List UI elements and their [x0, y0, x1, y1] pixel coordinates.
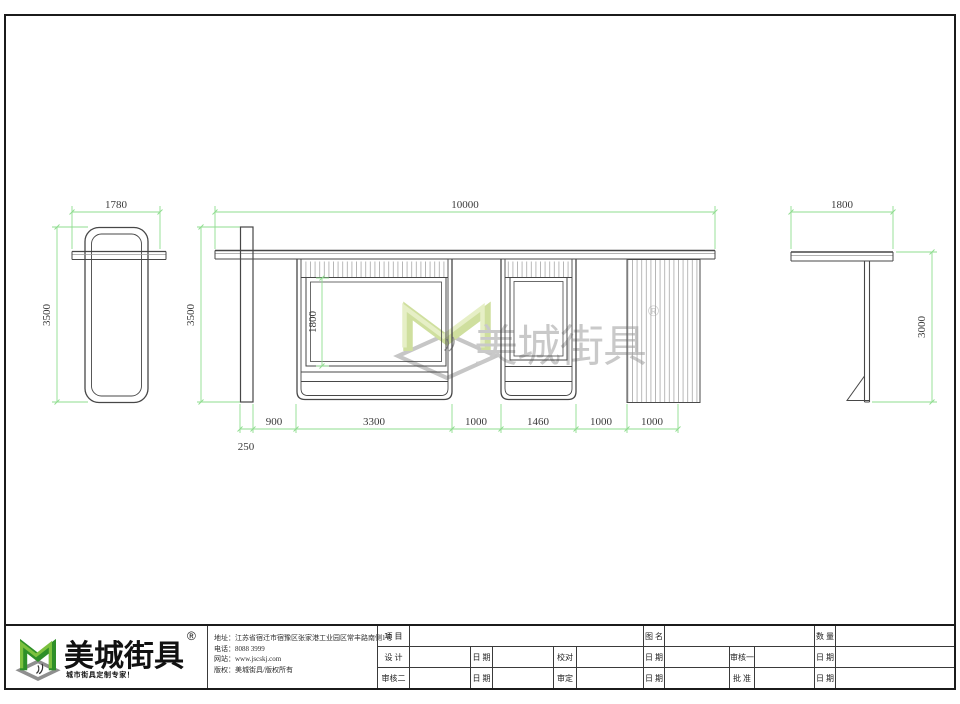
- label-proofread: 校对: [553, 647, 576, 667]
- field-proofread-date-value: [664, 647, 729, 667]
- label-approve-check: 审定: [553, 668, 576, 688]
- label-proofread-date: 日 期: [643, 647, 664, 667]
- table-row-2: 设 计 日 期 校对 日 期 审核一 日 期: [378, 646, 954, 667]
- field-designer-value: [409, 647, 470, 667]
- company-tagline: 城市街具定制专家！: [66, 670, 134, 680]
- company-logo-icon: [14, 634, 62, 684]
- label-reviewer-1: 审核一: [729, 647, 754, 667]
- drawing-sheet: 美城街具 ® 1780 3500: [0, 0, 960, 704]
- label-approver: 批 准: [729, 668, 754, 688]
- field-review-2-date-value: [492, 668, 553, 688]
- label-approve-date: 日 期: [814, 668, 835, 688]
- company-website: 网站：www.jscskj.com: [214, 654, 377, 665]
- field-approver-value: [754, 668, 814, 688]
- label-quantity: 数 量: [814, 626, 835, 646]
- company-address: 地址：江苏省宿迁市宿豫区张家港工业园区常丰路南侧1号: [214, 633, 377, 644]
- field-approve-check-value: [576, 668, 643, 688]
- company-logo-zone: 美城街具 ® 城市街具定制专家！: [6, 626, 207, 688]
- title-block: 美城街具 ® 城市街具定制专家！ 地址：江苏省宿迁市宿豫区张家港工业园区常丰路南…: [6, 624, 954, 688]
- field-review-1-date-value: [835, 647, 955, 667]
- company-phone: 电话：8088 3999: [214, 644, 377, 655]
- field-approve-check-date-value: [664, 668, 729, 688]
- sheet-border: [4, 14, 956, 690]
- table-row-1: 项 目 图 名 数 量: [378, 626, 954, 646]
- field-design-date-value: [492, 647, 553, 667]
- field-quantity-value: [835, 626, 955, 646]
- company-brand-name: 美城街具: [64, 631, 184, 675]
- label-project: 项 目: [378, 626, 409, 646]
- label-reviewer-2: 审核二: [378, 668, 409, 688]
- field-project-value: [409, 626, 643, 646]
- field-proofread-value: [576, 647, 643, 667]
- label-review-1-date: 日 期: [814, 647, 835, 667]
- field-approve-date-value: [835, 668, 955, 688]
- label-review-2-date: 日 期: [470, 668, 492, 688]
- company-copyright: 版权：美城街具/版权所有: [214, 665, 377, 676]
- label-drawing-name: 图 名: [643, 626, 664, 646]
- label-designer: 设 计: [378, 647, 409, 667]
- title-block-table: 项 目 图 名 数 量 设 计 日 期 校对 日 期 审核一 日 期: [377, 626, 954, 688]
- label-design-date: 日 期: [470, 647, 492, 667]
- field-drawing-name-value: [664, 626, 814, 646]
- field-reviewer-1-value: [754, 647, 814, 667]
- company-info: 地址：江苏省宿迁市宿豫区张家港工业园区常丰路南侧1号 电话：8088 3999 …: [207, 626, 377, 688]
- table-row-3: 审核二 日 期 审定 日 期 批 准 日 期: [378, 667, 954, 688]
- field-reviewer-2-value: [409, 668, 470, 688]
- registered-trademark-icon: ®: [187, 629, 196, 643]
- label-approve-check-date: 日 期: [643, 668, 664, 688]
